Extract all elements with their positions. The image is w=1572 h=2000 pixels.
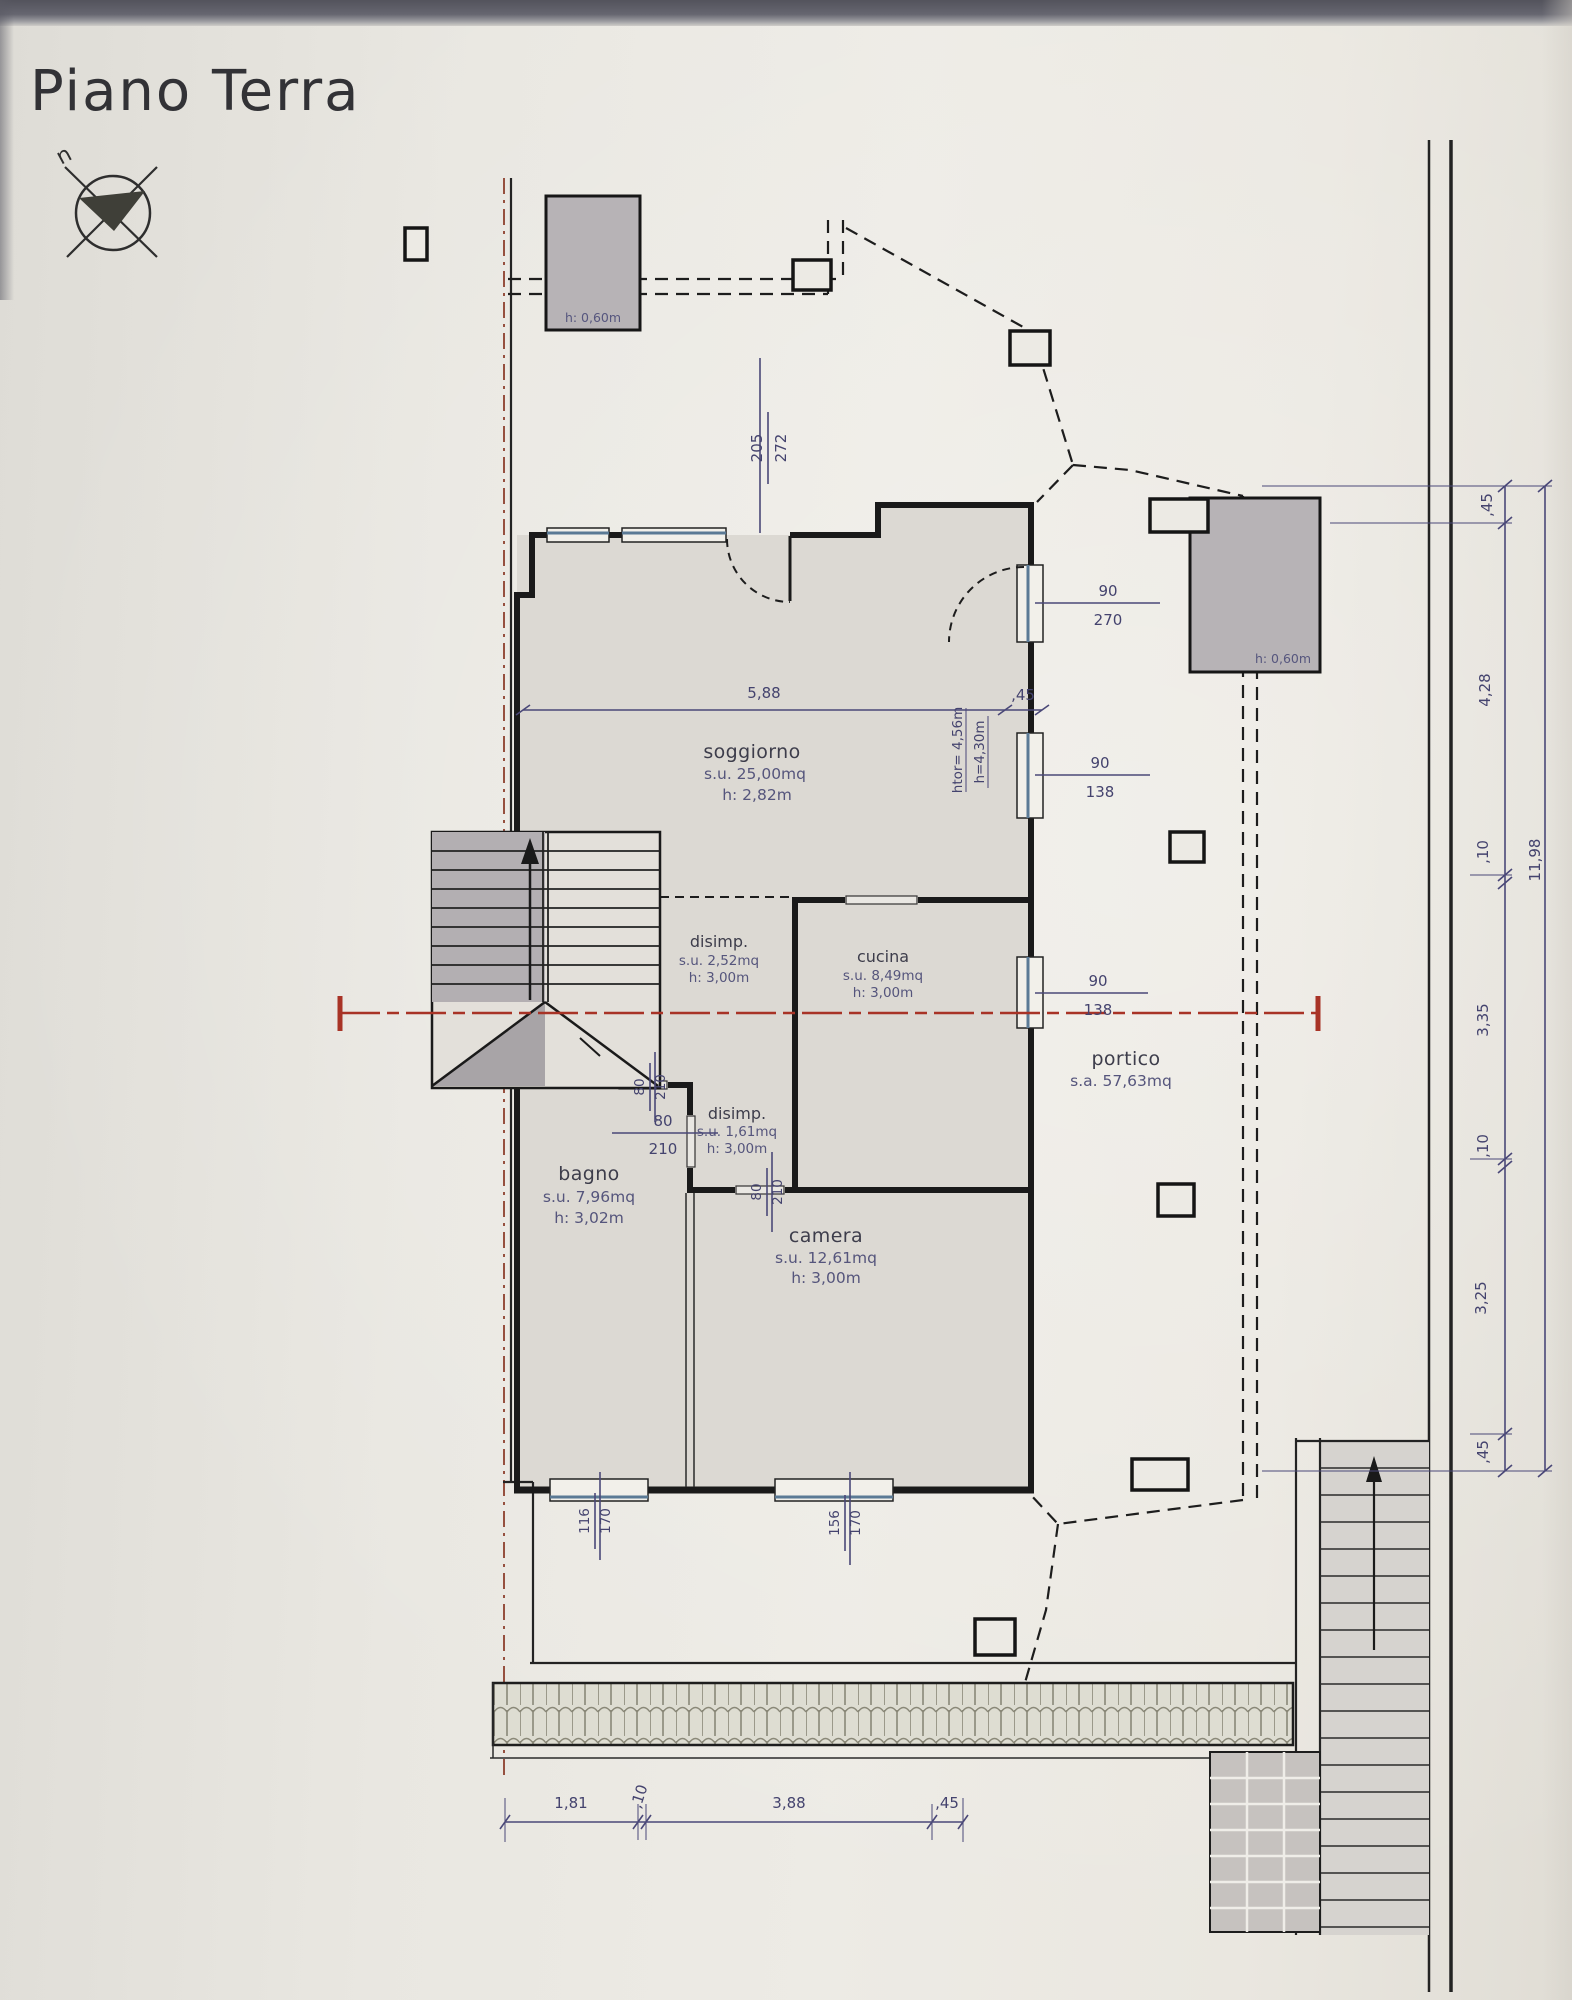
bottom-dimension-chain: 1,81 ,10 3,88 ,45	[500, 1782, 968, 1842]
svg-text:h: 3,00m: h: 3,00m	[853, 985, 914, 1001]
svg-text:h: 3,00m: h: 3,00m	[791, 1269, 861, 1287]
svg-text:272: 272	[772, 434, 790, 463]
svg-text:116: 116	[577, 1508, 593, 1534]
svg-text:138: 138	[1084, 1001, 1113, 1019]
dim-soggiorno-wall: ,45	[1011, 686, 1035, 704]
boundary-pillar	[405, 228, 427, 260]
right-chain-1: 4,28	[1476, 673, 1494, 706]
pillar	[1132, 1459, 1188, 1490]
shaft-left: h: 0,60m	[546, 196, 640, 330]
window-bagno-116-170	[550, 1479, 648, 1501]
svg-text:soggiorno: soggiorno	[703, 741, 800, 763]
bottom-chain-2: 3,88	[772, 1794, 805, 1812]
svg-text:s.u. 1,61mq: s.u. 1,61mq	[697, 1124, 777, 1140]
right-chain-4: ,10	[1474, 1134, 1492, 1158]
svg-text:210: 210	[653, 1074, 669, 1100]
internal-staircase	[432, 832, 660, 1088]
svg-text:270: 270	[1094, 611, 1123, 629]
svg-text:138: 138	[1086, 783, 1115, 801]
bagno-door-opening	[687, 1116, 695, 1167]
entry-window-205-272	[622, 528, 726, 542]
dim-window-camera-156-170: 156 170	[827, 1495, 864, 1551]
right-chain-total: 11,98	[1526, 839, 1544, 882]
road-lines	[1429, 140, 1451, 1992]
pillar	[1158, 1184, 1194, 1216]
svg-text:portico: portico	[1091, 1048, 1160, 1070]
right-chain-0: ,45	[1478, 493, 1496, 517]
svg-text:s.u. 25,00mq: s.u. 25,00mq	[704, 765, 806, 783]
svg-text:170: 170	[848, 1510, 864, 1536]
right-chain-6: ,45	[1474, 1440, 1492, 1464]
room-label-disimp-1: disimp. s.u. 2,52mq h: 3,00m	[679, 932, 759, 986]
bottom-chain-0: 1,81	[554, 1794, 587, 1812]
svg-text:90: 90	[1088, 972, 1107, 990]
pillar	[1170, 832, 1204, 862]
shaft-left-height-label: h: 0,60m	[565, 310, 621, 325]
pillar	[1150, 499, 1208, 532]
svg-text:cucina: cucina	[857, 947, 909, 966]
page-title: Piano Terra	[30, 59, 361, 124]
svg-text:205: 205	[748, 434, 766, 463]
dim-door-90-270: 90 270	[1035, 582, 1160, 629]
svg-text:90: 90	[1098, 582, 1117, 600]
compass-north-label: n	[52, 142, 76, 171]
svg-text:80: 80	[632, 1078, 648, 1095]
site-lower-boundary	[490, 1663, 1296, 1758]
room-label-disimp-2: disimp. s.u. 1,61mq h: 3,00m	[697, 1104, 777, 1157]
room-label-portico: portico s.a. 57,63mq	[1070, 1048, 1172, 1090]
svg-text:disimp.: disimp.	[690, 932, 748, 951]
bottom-chain-1: ,10	[627, 1782, 651, 1810]
lower-stair-grid	[1210, 1752, 1320, 1932]
svg-text:80: 80	[749, 1183, 765, 1200]
window-top-small	[547, 528, 609, 542]
dim-soggiorno-width: 5,88	[747, 684, 780, 702]
svg-text:210: 210	[770, 1179, 786, 1205]
right-chain-3: 3,35	[1474, 1003, 1492, 1036]
roof-tile-hatch-strip	[493, 1683, 1293, 1745]
pillar	[975, 1619, 1015, 1655]
height-note-1: htor= 4,56m	[950, 707, 966, 793]
right-chain-2: ,10	[1474, 840, 1492, 864]
svg-text:disimp.: disimp.	[708, 1104, 766, 1123]
svg-text:210: 210	[649, 1140, 678, 1158]
svg-text:80: 80	[653, 1112, 672, 1130]
svg-text:170: 170	[598, 1508, 614, 1534]
pillar	[1010, 331, 1050, 365]
north-compass-icon: n	[52, 142, 157, 257]
dim-window-sogg-90-138: 90 138	[1035, 754, 1150, 801]
svg-text:156: 156	[827, 1510, 843, 1536]
svg-text:90: 90	[1090, 754, 1109, 772]
floor-plan-drawing: Piano Terra n	[0, 0, 1572, 2000]
window-camera-156-170	[775, 1479, 893, 1501]
svg-text:camera: camera	[789, 1225, 863, 1247]
shaft-right-height-label: h: 0,60m	[1255, 651, 1311, 666]
svg-text:s.u. 12,61mq: s.u. 12,61mq	[775, 1249, 877, 1267]
svg-text:s.u. 8,49mq: s.u. 8,49mq	[843, 968, 923, 984]
svg-text:h: 3,00m: h: 3,00m	[689, 970, 750, 986]
dim-entry-205-272: 205 272	[748, 412, 790, 484]
svg-text:s.a. 57,63mq: s.a. 57,63mq	[1070, 1072, 1172, 1090]
right-chain-5: 3,25	[1472, 1281, 1490, 1314]
cucina-door-opening	[846, 896, 917, 904]
photographed-floor-plan-sheet: Piano Terra n	[0, 0, 1572, 2000]
svg-text:s.u. 7,96mq: s.u. 7,96mq	[543, 1188, 635, 1206]
pillar	[793, 260, 831, 290]
height-note-2: h=4,30m	[972, 720, 988, 783]
svg-text:h: 3,00m: h: 3,00m	[707, 1141, 768, 1157]
svg-text:bagno: bagno	[558, 1163, 619, 1185]
bottom-chain-3: ,45	[935, 1794, 959, 1812]
svg-text:h: 3,02m: h: 3,02m	[554, 1209, 624, 1227]
svg-text:s.u. 2,52mq: s.u. 2,52mq	[679, 953, 759, 969]
svg-text:h: 2,82m: h: 2,82m	[722, 786, 792, 804]
